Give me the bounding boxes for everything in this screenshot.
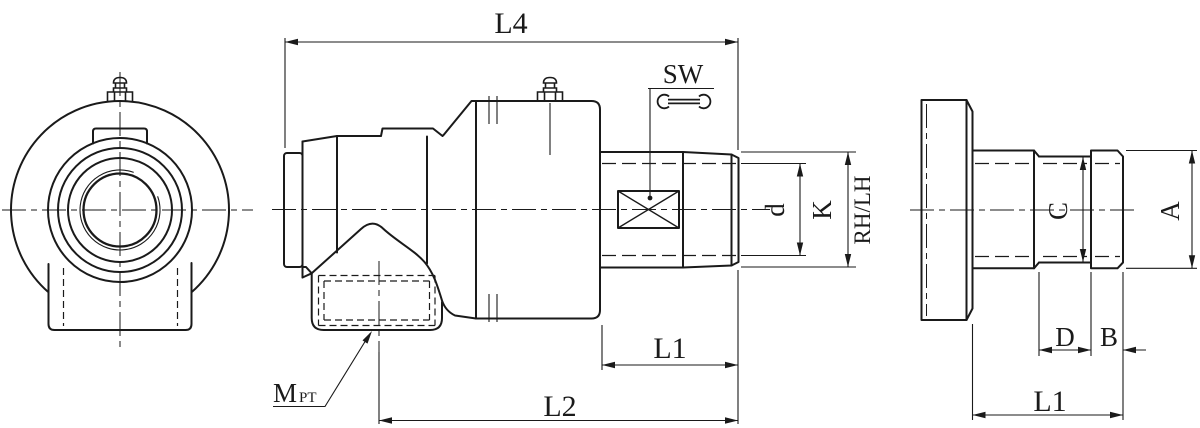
rh-lh-label: RH/LH [850,176,875,245]
technical-drawing: SW L4 L1 L2 d [0,0,1200,428]
grease-nipple-icon [538,78,563,102]
cap-bottom-step [303,267,312,273]
a-label: A [1155,201,1185,221]
l1-side-label: L1 [653,332,686,365]
dim-l1-side: L1 [602,270,738,424]
port-thread-dash-outer [319,276,436,326]
port-opening [312,273,442,330]
nipple-section-b [1091,151,1123,269]
d-big-label: D [1055,322,1075,352]
l4-label: L4 [494,7,527,40]
port-thread-dash-inner [324,281,430,320]
m-pt-callout: M PT [273,331,372,408]
d-label: d [760,203,790,217]
sleeve-bottom-edge [303,273,312,277]
b-label: B [1100,322,1118,352]
sw-callout: SW [648,59,714,196]
l2-label: L2 [543,390,576,423]
side-view: SW L4 L1 L2 d [272,7,875,424]
drawing-sheet: SW L4 L1 L2 d [0,0,1200,428]
wrench-icon [658,95,711,109]
k-label: K [807,200,837,220]
nipple-section-1 [973,151,1035,269]
wrench-flat-x-marker [618,191,679,228]
m-sub-label: PT [299,390,317,406]
c-label: C [1043,202,1073,220]
dim-a: A [1126,151,1197,269]
dim-d-thread: d K RH/LH [741,152,875,267]
end-view: C A D B L1 [910,100,1197,420]
sw-label: SW [663,59,704,89]
m-label: M [273,378,297,408]
l1-end-label: L1 [1033,385,1066,418]
front-view [2,72,253,350]
